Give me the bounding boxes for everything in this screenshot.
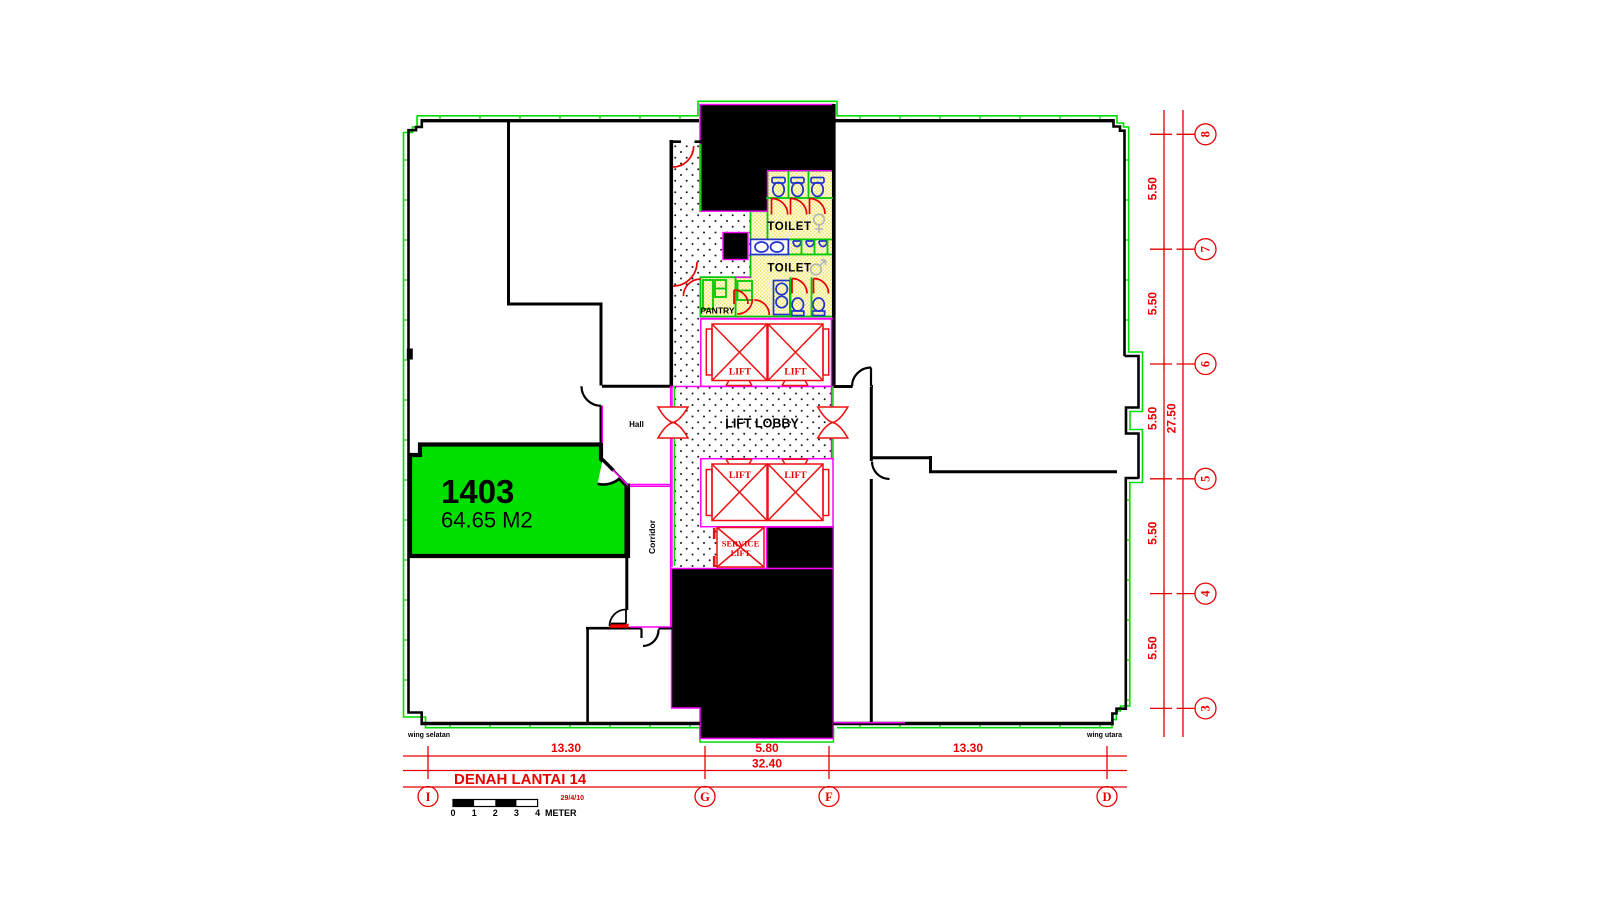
svg-text:5.50: 5.50 — [1146, 636, 1160, 660]
svg-text:13.30: 13.30 — [551, 741, 581, 755]
svg-text:wing utara: wing utara — [1086, 732, 1122, 739]
svg-text:SERVICE: SERVICE — [722, 539, 760, 549]
svg-text:METER: METER — [545, 808, 577, 818]
svg-text:LIFT LOBBY: LIFT LOBBY — [725, 417, 799, 431]
svg-text:0: 0 — [450, 808, 455, 818]
svg-text:I: I — [426, 790, 431, 804]
svg-text:PANTRY: PANTRY — [701, 306, 735, 316]
svg-text:8: 8 — [1199, 131, 1213, 137]
svg-text:LIFT: LIFT — [784, 368, 807, 378]
svg-text:64.65 M2: 64.65 M2 — [441, 508, 533, 533]
svg-text:LIFT: LIFT — [729, 471, 752, 481]
svg-text:13.30: 13.30 — [953, 741, 983, 755]
svg-text:5.50: 5.50 — [1146, 292, 1160, 316]
svg-text:G: G — [700, 790, 710, 804]
svg-text:5.50: 5.50 — [1146, 406, 1160, 430]
svg-text:5.50: 5.50 — [1146, 177, 1160, 201]
svg-text:27.50: 27.50 — [1165, 403, 1179, 433]
svg-text:DENAH LANTAI 14: DENAH LANTAI 14 — [454, 771, 587, 788]
svg-text:3: 3 — [1199, 705, 1213, 711]
svg-text:5: 5 — [1199, 476, 1213, 482]
svg-text:32.40: 32.40 — [752, 757, 782, 771]
svg-text:D: D — [1102, 790, 1111, 804]
svg-text:LIFT: LIFT — [729, 368, 752, 378]
svg-text:4: 4 — [1199, 590, 1213, 597]
svg-text:TOILET: TOILET — [767, 263, 811, 275]
svg-text:4: 4 — [535, 808, 540, 818]
svg-text:5.80: 5.80 — [755, 741, 779, 755]
svg-text:2: 2 — [493, 808, 498, 818]
svg-text:5.50: 5.50 — [1146, 521, 1160, 545]
svg-text:1403: 1403 — [441, 473, 514, 510]
svg-text:wing selatan: wing selatan — [407, 732, 450, 739]
svg-text:3: 3 — [514, 808, 519, 818]
svg-text:7: 7 — [1199, 246, 1213, 252]
svg-text:LIFT: LIFT — [731, 548, 751, 558]
svg-text:29/4/10: 29/4/10 — [561, 795, 584, 802]
svg-text:TOILET: TOILET — [767, 221, 811, 233]
svg-text:Hall: Hall — [629, 420, 644, 429]
svg-text:Corridor: Corridor — [647, 519, 657, 554]
svg-text:6: 6 — [1199, 361, 1213, 367]
svg-text:F: F — [825, 790, 833, 804]
svg-text:LIFT: LIFT — [784, 471, 807, 481]
svg-text:1: 1 — [472, 808, 477, 818]
